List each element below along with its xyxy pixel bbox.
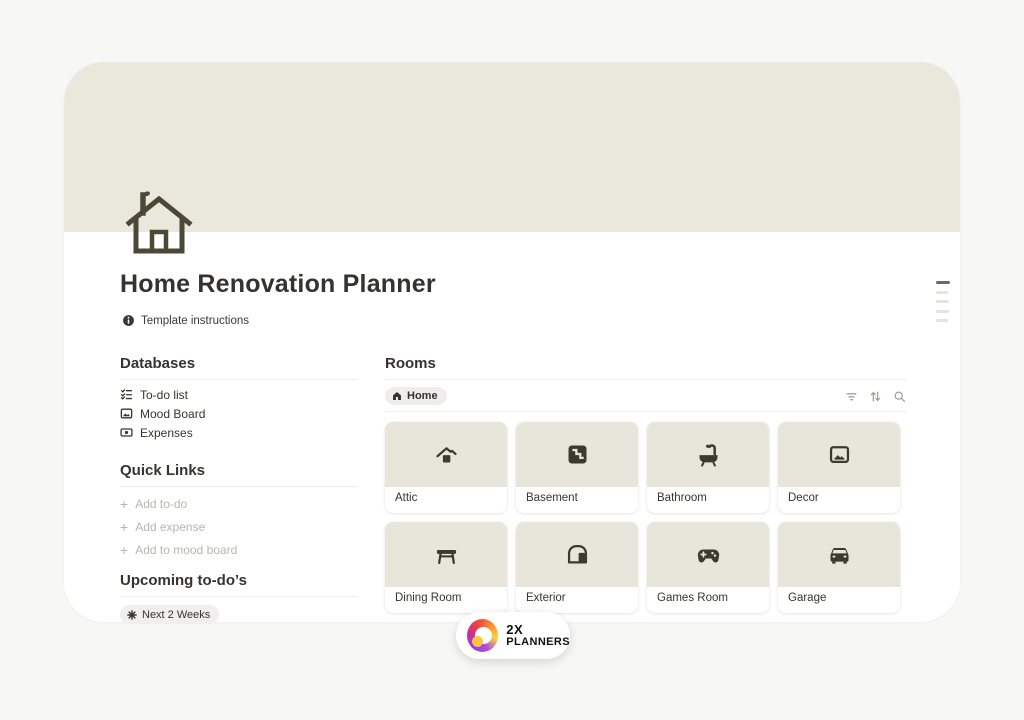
quick-link-label: Add to mood board — [135, 543, 237, 557]
sort-icon[interactable] — [869, 390, 882, 403]
room-card-exterior[interactable]: Exterior — [516, 522, 638, 613]
divider — [120, 486, 358, 487]
toc-dash — [936, 319, 948, 322]
sidebar: Databases To-do list Mood Board Expenses — [120, 355, 358, 625]
room-card-games-room[interactable]: Games Room — [647, 522, 769, 613]
toc-dash — [936, 310, 949, 313]
basement-icon — [564, 441, 591, 468]
logo-line1: 2X — [506, 623, 570, 637]
shed-icon — [564, 541, 591, 568]
divider — [120, 596, 358, 597]
quick-links-heading: Quick Links — [120, 462, 358, 480]
tile-cover — [516, 522, 638, 587]
tab-home-label: Home — [407, 390, 438, 402]
toc-dash — [936, 281, 950, 284]
room-card-decor[interactable]: Decor — [778, 422, 900, 513]
image-icon — [120, 407, 133, 420]
tab-home[interactable]: Home — [385, 387, 447, 405]
controller-icon — [695, 541, 722, 568]
room-card-label: Decor — [778, 487, 900, 504]
home-icon — [392, 391, 402, 401]
room-card-garage[interactable]: Garage — [778, 522, 900, 613]
page-title: Home Renovation Planner — [120, 270, 436, 299]
sidebar-item-mood-board[interactable]: Mood Board — [120, 404, 358, 423]
info-icon — [122, 314, 135, 327]
tile-cover — [647, 422, 769, 487]
room-card-label: Games Room — [647, 587, 769, 604]
rooms-section: Rooms Home — [385, 355, 906, 613]
room-card-label: Dining Room — [385, 587, 507, 604]
quick-link-add-todo[interactable]: + Add to-do — [120, 492, 358, 515]
template-instructions-label: Template instructions — [141, 315, 249, 327]
plus-icon: + — [120, 543, 128, 557]
room-card-label: Attic — [385, 487, 507, 504]
tile-cover — [647, 522, 769, 587]
sidebar-item-todo-list[interactable]: To-do list — [120, 385, 358, 404]
next-2-weeks-view-tab[interactable]: Next 2 Weeks — [120, 605, 219, 624]
tile-cover — [385, 522, 507, 587]
room-card-label: Bathroom — [647, 487, 769, 504]
page-card: Home Renovation Planner Template instruc… — [64, 62, 960, 622]
attic-icon — [433, 441, 460, 468]
picture-icon — [826, 441, 853, 468]
banknote-icon — [120, 426, 133, 439]
quick-link-add-mood-board[interactable]: + Add to mood board — [120, 538, 358, 561]
divider — [385, 379, 906, 380]
quick-link-label: Add to-do — [135, 497, 187, 511]
room-card-attic[interactable]: Attic — [385, 422, 507, 513]
planners-logo-icon — [467, 619, 498, 652]
room-card-bathroom[interactable]: Bathroom — [647, 422, 769, 513]
room-card-label: Garage — [778, 587, 900, 604]
filter-icon[interactable] — [845, 390, 858, 403]
page-cover — [64, 62, 960, 232]
view-toolbar — [845, 390, 906, 403]
tile-cover — [385, 422, 507, 487]
tile-cover — [516, 422, 638, 487]
tile-cover — [778, 422, 900, 487]
car-icon — [826, 541, 853, 568]
table-icon — [433, 541, 460, 568]
toc-dash — [936, 300, 949, 303]
todo-list-icon — [120, 388, 133, 401]
rooms-heading: Rooms — [385, 355, 906, 373]
logo-line2: PLANNERS — [506, 637, 570, 649]
plus-icon: + — [120, 497, 128, 511]
sidebar-item-label: To-do list — [140, 388, 188, 402]
sidebar-item-label: Mood Board — [140, 407, 205, 421]
room-card-label: Basement — [516, 487, 638, 504]
toc-dash — [936, 291, 948, 294]
search-icon[interactable] — [893, 390, 906, 403]
house-page-icon — [122, 188, 196, 258]
sidebar-item-expenses[interactable]: Expenses — [120, 423, 358, 442]
template-instructions-toggle[interactable]: Template instructions — [122, 314, 249, 327]
rooms-grid: Attic Basement — [385, 422, 906, 613]
rooms-toolbar: Home — [385, 387, 906, 405]
spark-icon — [127, 610, 137, 620]
bathtub-icon — [695, 441, 722, 468]
upcoming-heading: Upcoming to-do’s — [120, 572, 358, 590]
quick-link-add-expense[interactable]: + Add expense — [120, 515, 358, 538]
tile-cover — [778, 522, 900, 587]
databases-heading: Databases — [120, 355, 358, 373]
divider — [120, 379, 358, 380]
room-card-label: Exterior — [516, 587, 638, 604]
planners-logo-text: 2X PLANNERS — [506, 623, 570, 648]
planners-logo-badge: 2X PLANNERS — [456, 612, 570, 659]
sidebar-item-label: Expenses — [140, 426, 193, 440]
quick-link-label: Add expense — [135, 520, 205, 534]
plus-icon: + — [120, 520, 128, 534]
room-card-dining-room[interactable]: Dining Room — [385, 522, 507, 613]
room-card-basement[interactable]: Basement — [516, 422, 638, 513]
divider — [385, 411, 906, 412]
table-of-contents-indicator[interactable] — [936, 281, 950, 329]
next-2-weeks-label: Next 2 Weeks — [142, 609, 210, 621]
